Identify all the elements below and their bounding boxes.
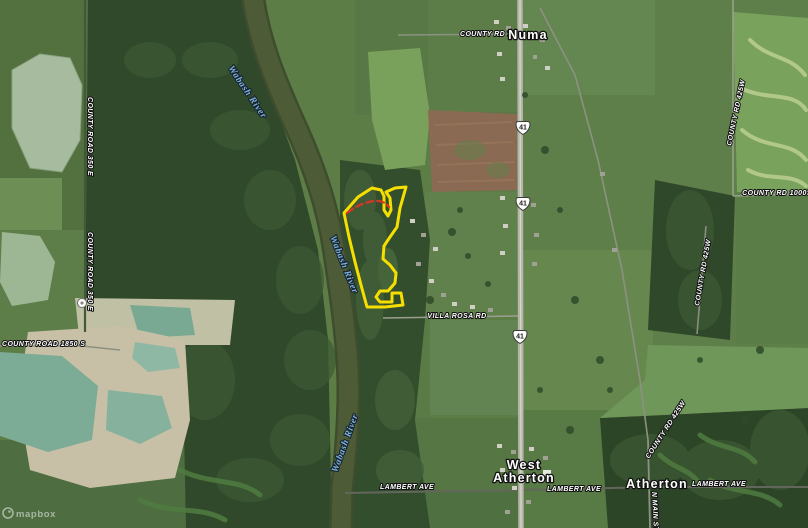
us-41-shield-mid-number: 41 xyxy=(519,201,527,208)
place-label-west-atherton-line1: West xyxy=(507,458,541,472)
us-41-shield-south-number: 41 xyxy=(516,334,524,341)
place-label-numa: Numa xyxy=(508,28,548,42)
road-label-county-road-350e-north: COUNTY ROAD 350 E xyxy=(86,97,93,176)
road-label-lambert-ave-east: LAMBERT AVE xyxy=(692,481,746,488)
road-label-lambert-ave-center: LAMBERT AVE xyxy=(547,486,601,493)
road-label-county-road-1850s: COUNTY ROAD 1850 S xyxy=(2,341,85,348)
road-label-county-road-350e-south: COUNTY ROAD 350 E xyxy=(86,232,93,311)
road-label-county-rd-1000s: COUNTY RD 1000S xyxy=(742,190,808,197)
mapbox-wordmark: mapbox xyxy=(16,509,56,520)
place-label-atherton: Atherton xyxy=(626,477,688,491)
map-canvas[interactable]: 41 41 41 COUNTY RD 72 COUNTY RD 425W COU… xyxy=(0,0,808,528)
road-label-villa-rosa-rd: VILLA ROSA RD xyxy=(427,313,486,320)
us-41-shield-north-number: 41 xyxy=(519,125,527,132)
poi-marker[interactable] xyxy=(78,299,87,308)
place-label-west-atherton-line2: Atherton xyxy=(493,471,555,485)
road-label-lambert-ave-west: LAMBERT AVE xyxy=(380,484,434,491)
